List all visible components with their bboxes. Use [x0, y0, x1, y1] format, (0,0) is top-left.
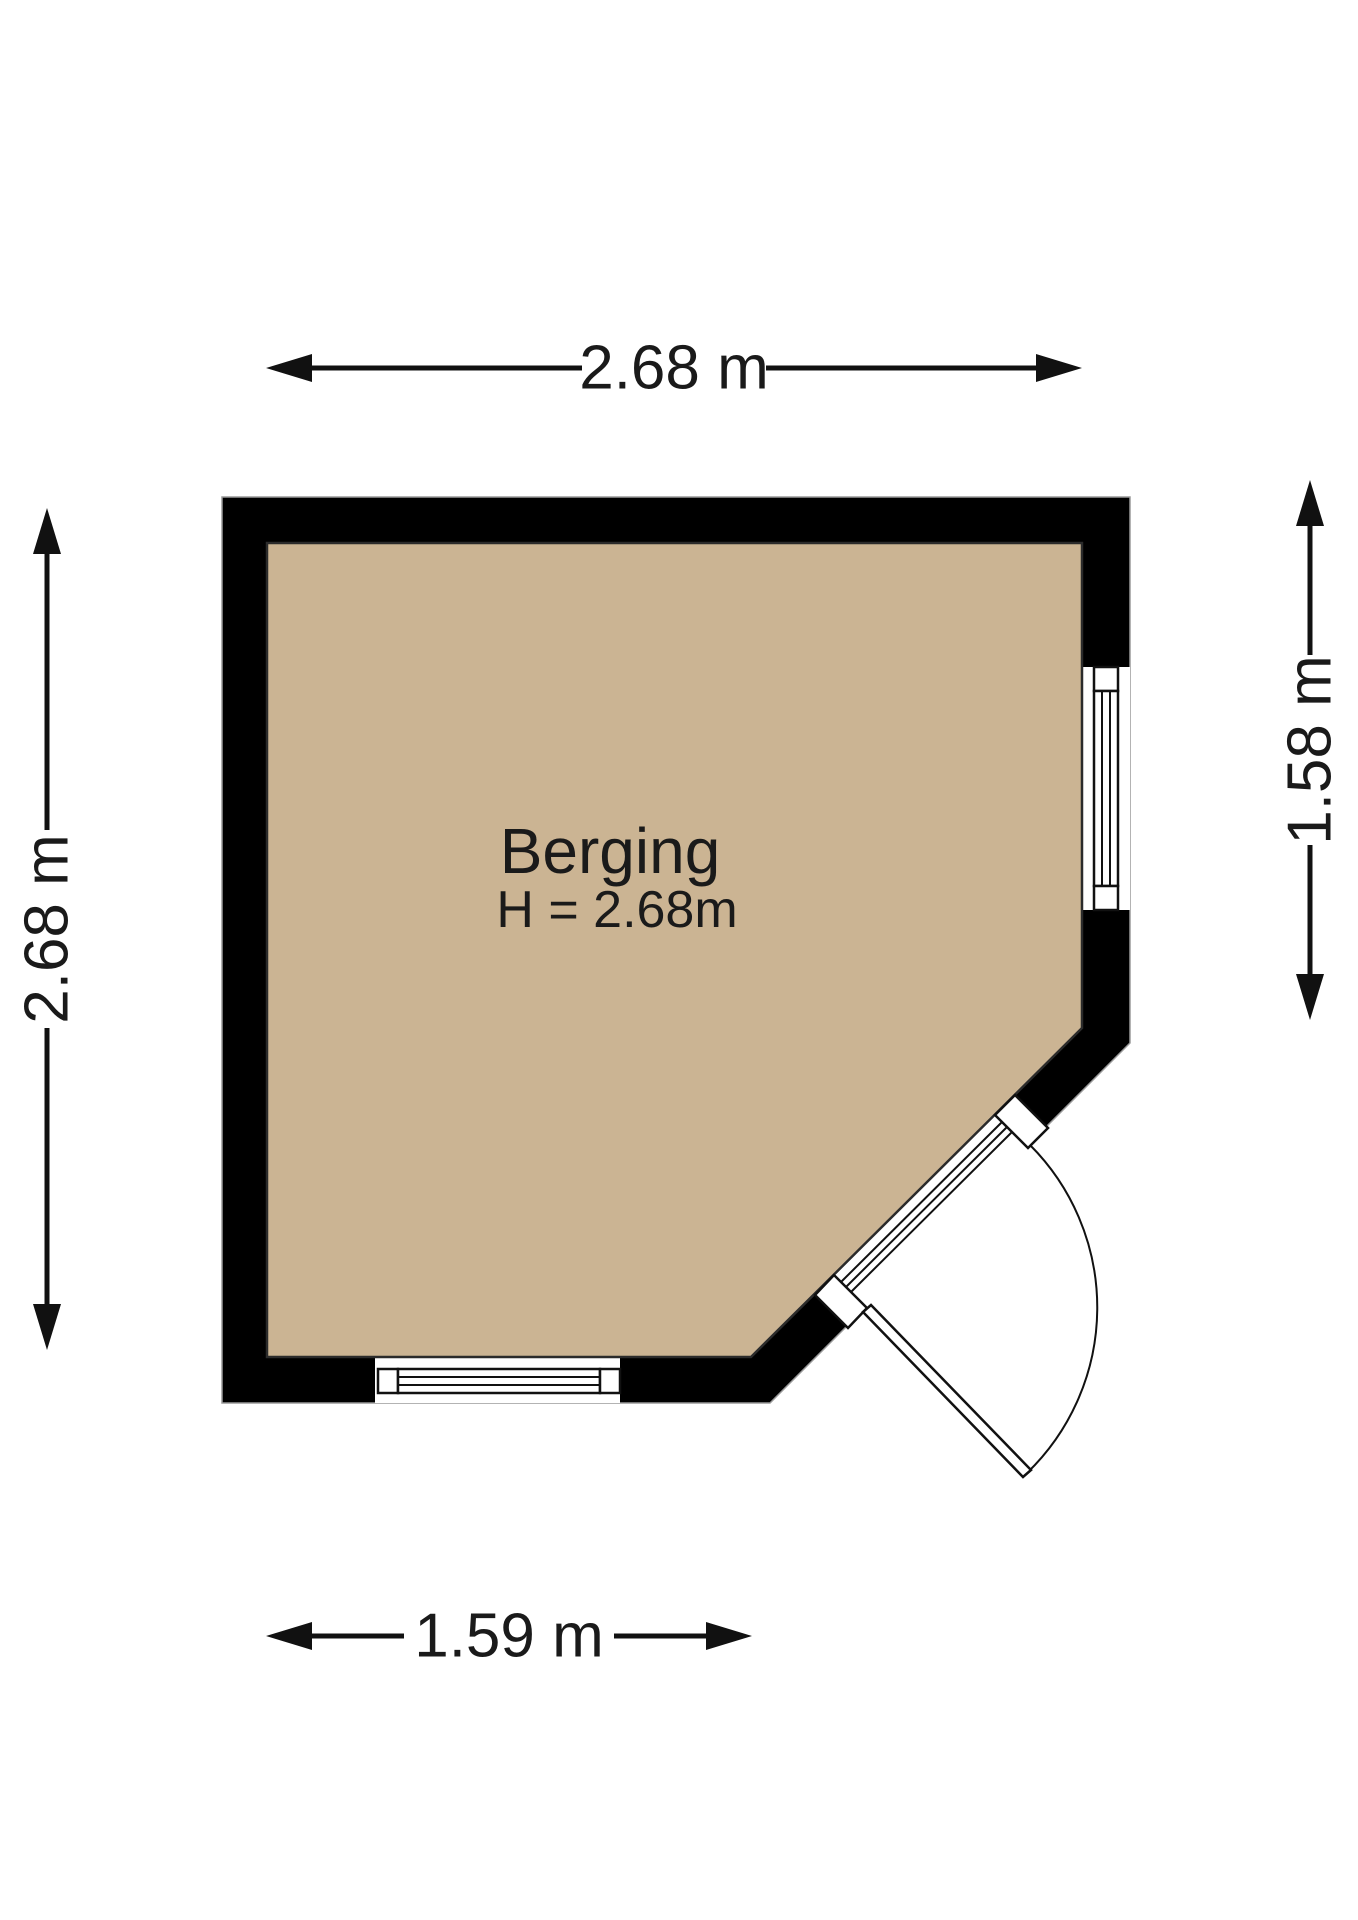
arrow-down-icon [33, 1304, 61, 1350]
window-bottom-cap-right [600, 1369, 620, 1393]
floor-area [267, 543, 1082, 1357]
arrow-right-icon [706, 1622, 752, 1650]
window-right-cap-bottom [1094, 886, 1118, 910]
room-labels: Berging H = 2.68m [496, 815, 737, 939]
arrow-up-icon [1296, 480, 1324, 526]
dimension-left-label: 2.68 m [13, 834, 82, 1024]
window-bottom-glazing [398, 1369, 600, 1393]
dimension-bottom-label: 1.59 m [414, 1602, 604, 1671]
window-right [1094, 667, 1118, 910]
window-bottom [378, 1369, 620, 1393]
dimension-right-label: 1.58 m [1276, 655, 1345, 845]
window-right-glazing [1094, 691, 1118, 886]
room-name-label: Berging [500, 815, 721, 887]
arrow-up-icon [33, 508, 61, 554]
arrow-right-icon [1036, 354, 1082, 382]
dimension-right: 1.58 m [1276, 480, 1345, 1020]
dimension-top: 2.68 m [266, 334, 1082, 403]
floorplan-canvas: Berging H = 2.68m 2.68 m 2.68 m 1.58 m 1… [0, 0, 1358, 1920]
dimension-left: 2.68 m [13, 508, 82, 1350]
dimension-bottom: 1.59 m [266, 1602, 752, 1671]
door-leaf [863, 1305, 1031, 1477]
room-height-label: H = 2.68m [496, 881, 737, 939]
arrow-left-icon [266, 354, 312, 382]
door-swing-arc [1027, 1145, 1097, 1473]
window-bottom-cap-left [378, 1369, 398, 1393]
arrow-down-icon [1296, 974, 1324, 1020]
dimension-top-label: 2.68 m [579, 334, 769, 403]
window-right-cap-top [1094, 667, 1118, 691]
arrow-left-icon [266, 1622, 312, 1650]
